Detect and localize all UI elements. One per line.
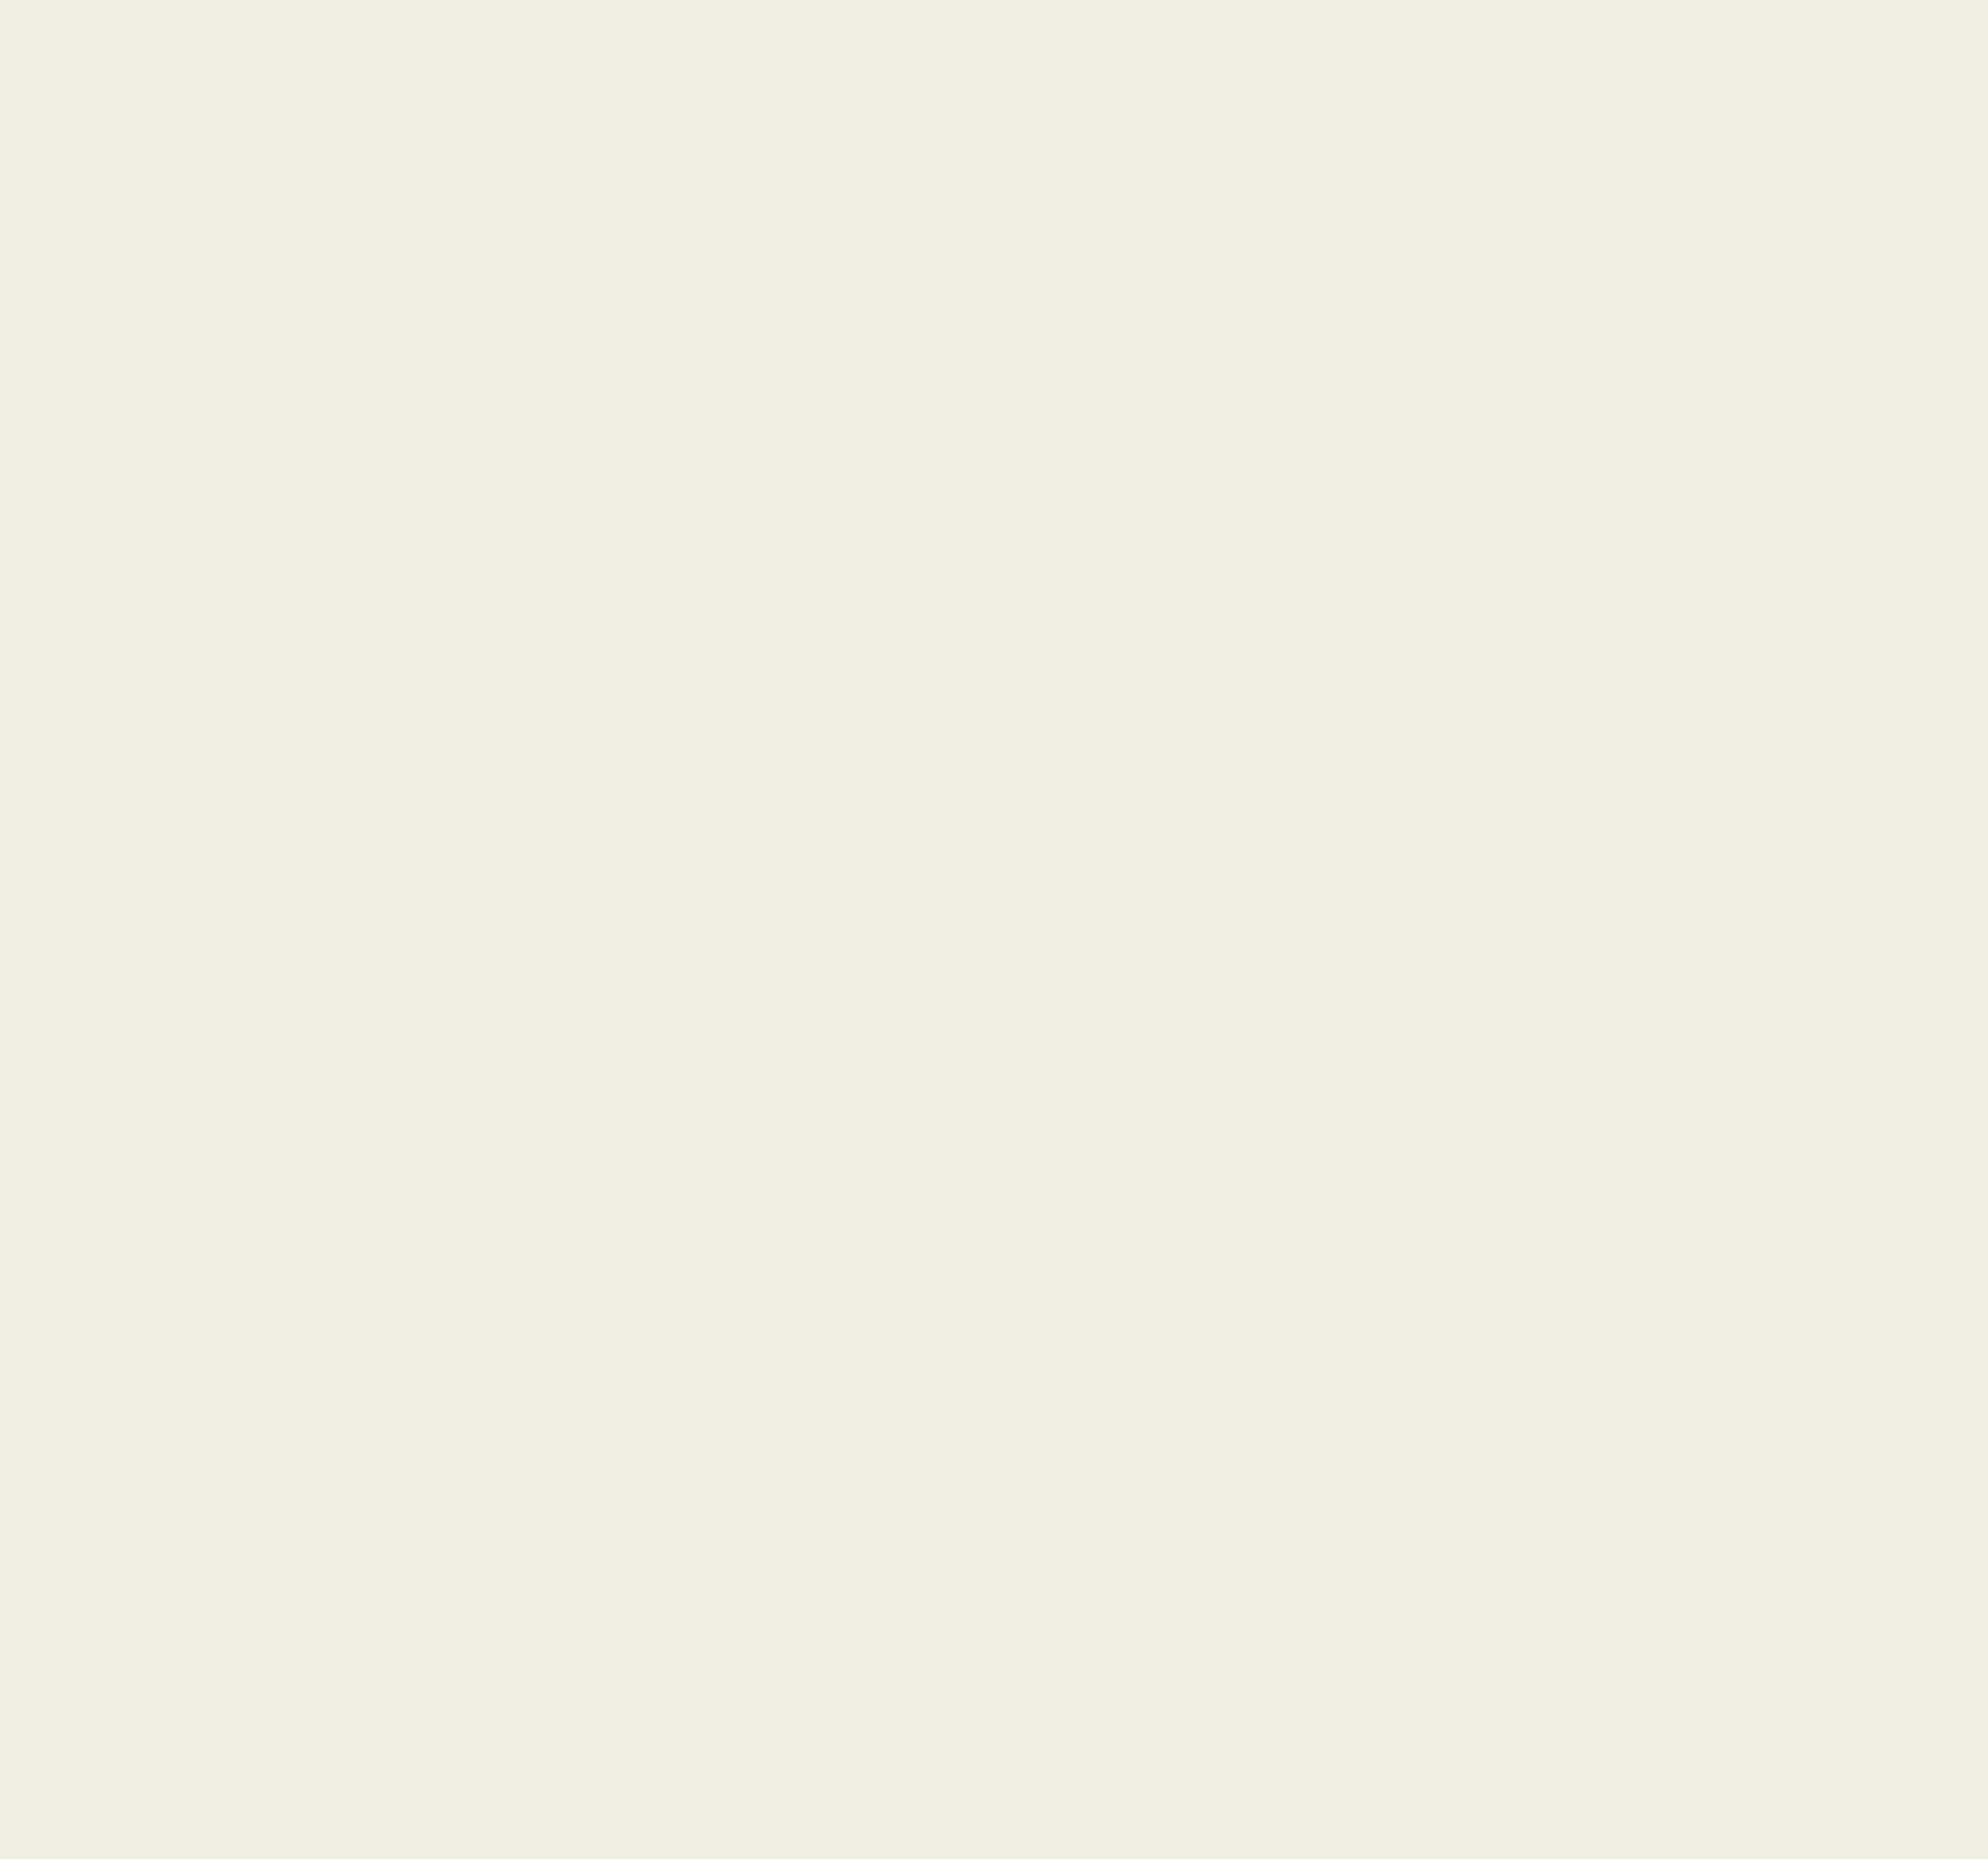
site-plan-canvas	[0, 0, 1988, 1859]
site-plan-page	[0, 0, 1988, 1859]
